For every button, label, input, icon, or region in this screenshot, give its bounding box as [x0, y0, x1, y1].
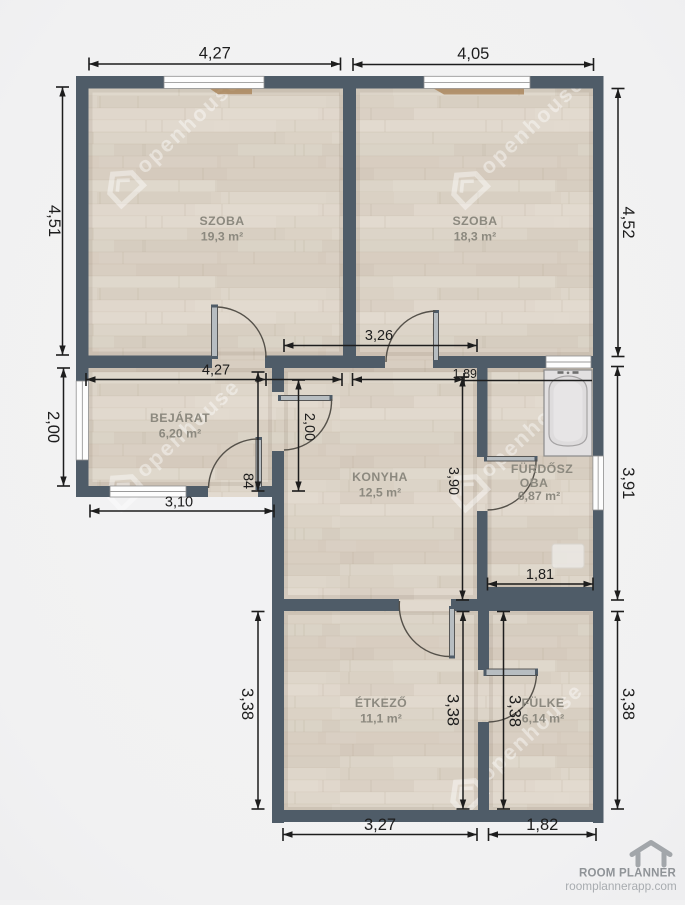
- svg-text:12,5 m²: 12,5 m²: [359, 486, 401, 500]
- svg-text:4,27: 4,27: [202, 363, 230, 379]
- svg-text:3,27: 3,27: [364, 816, 396, 834]
- svg-text:6,20 m²: 6,20 m²: [159, 427, 201, 441]
- svg-text:BEJÁRAT: BEJÁRAT: [150, 410, 210, 425]
- svg-text:1,82: 1,82: [526, 816, 558, 834]
- svg-text:3,38: 3,38: [444, 694, 462, 726]
- svg-text:OBA: OBA: [520, 476, 549, 490]
- svg-text:4,52: 4,52: [619, 206, 637, 238]
- svg-text:3,26: 3,26: [365, 328, 393, 344]
- svg-text:19,3 m²: 19,3 m²: [201, 230, 243, 244]
- svg-text:84: 84: [240, 473, 256, 489]
- svg-text:6,87 m²: 6,87 m²: [518, 489, 560, 503]
- svg-text:3,38: 3,38: [238, 688, 256, 720]
- svg-text:3,10: 3,10: [165, 495, 193, 511]
- svg-text:SZOBA: SZOBA: [452, 214, 497, 228]
- svg-text:SZOBA: SZOBA: [199, 214, 244, 228]
- svg-text:3,90: 3,90: [445, 467, 461, 495]
- svg-text:FÜRDŐSZ: FÜRDŐSZ: [511, 461, 573, 476]
- svg-text:roomplannerapp.com: roomplannerapp.com: [565, 879, 677, 893]
- svg-text:3,38: 3,38: [619, 688, 637, 720]
- svg-text:ÉTKEZŐ: ÉTKEZŐ: [355, 695, 407, 710]
- svg-text:4,51: 4,51: [45, 205, 63, 237]
- svg-text:2,00: 2,00: [44, 411, 62, 443]
- svg-text:18,3 m²: 18,3 m²: [454, 230, 496, 244]
- svg-text:KONYHA: KONYHA: [352, 470, 408, 484]
- svg-text:ROOM PLANNER: ROOM PLANNER: [579, 868, 676, 880]
- svg-text:4,05: 4,05: [457, 45, 489, 63]
- svg-text:1,81: 1,81: [526, 567, 554, 583]
- svg-text:11,1 m²: 11,1 m²: [360, 712, 402, 726]
- svg-text:FÜLKE: FÜLKE: [522, 695, 565, 710]
- svg-text:1,89: 1,89: [453, 367, 477, 381]
- svg-text:4,27: 4,27: [199, 45, 231, 63]
- svg-text:3,91: 3,91: [619, 467, 637, 499]
- svg-text:6,14 m²: 6,14 m²: [522, 712, 564, 726]
- svg-text:2,00: 2,00: [301, 413, 317, 441]
